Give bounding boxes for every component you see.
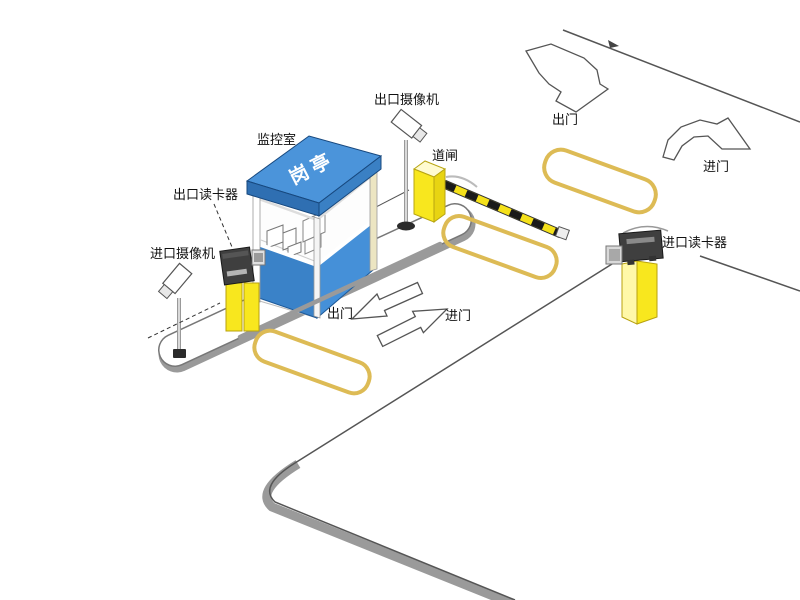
ground-loop-exit-inner (250, 326, 374, 397)
loop-ring (540, 145, 661, 217)
barrier-gate-label: 道闸 (432, 149, 458, 164)
loop-ring (250, 326, 374, 397)
exit-reader-post-a (226, 283, 242, 331)
entrance-reader-leg-right (649, 256, 656, 262)
entrance-card-reader-label: 进口读卡器 (662, 236, 727, 251)
exit-reader-leader-line (214, 204, 232, 247)
enter-arrow-lane (377, 309, 447, 346)
lot-edge-east (700, 256, 800, 291)
booth-post-right (370, 167, 377, 271)
guard-booth: 岗亭 (247, 136, 381, 318)
diagram-canvas: 岗亭 (0, 0, 800, 600)
enter-door-lane-label: 进门 (445, 309, 471, 324)
exit-arrow-top (526, 44, 608, 112)
gate-box-front (414, 169, 434, 222)
entrance-reader-post-side (622, 261, 637, 324)
entrance-camera-label: 进口摄像机 (150, 247, 215, 262)
camera-body-group (157, 263, 192, 300)
entrance-reader-display-screen (609, 249, 620, 261)
exit-reader-display-screen (254, 253, 263, 262)
exit-door-top-label: 出门 (552, 113, 578, 128)
exit-reader-post-b (244, 283, 259, 331)
enter-door-top-label: 进门 (703, 160, 729, 175)
camera-pole-base (397, 222, 415, 231)
entrance-card-reader-assembly (606, 226, 668, 324)
parking-system-diagram: 岗亭 (0, 0, 800, 600)
ground-loop-entry (540, 145, 661, 217)
lot-curb (267, 464, 513, 600)
barrier-gate-box (414, 161, 445, 222)
entrance-reader-device (619, 230, 663, 262)
road-direction-tick (608, 40, 619, 48)
exit-reader-device-group (220, 247, 254, 285)
monitor-room-label: 监控室 (257, 132, 296, 148)
gate-box-side (434, 169, 445, 222)
enter-arrow-top (663, 118, 750, 160)
entrance-reader-device-group (619, 230, 664, 266)
camera-pole-base (173, 349, 186, 358)
entrance-reader-post-front (637, 261, 657, 324)
exit-camera-label: 出口摄像机 (374, 93, 439, 108)
exit-card-reader-label: 出口读卡器 (173, 188, 238, 203)
entrance-reader-leg-left (627, 260, 634, 266)
camera-body-group (391, 109, 428, 143)
exit-door-lane-label: 出门 (327, 307, 353, 322)
